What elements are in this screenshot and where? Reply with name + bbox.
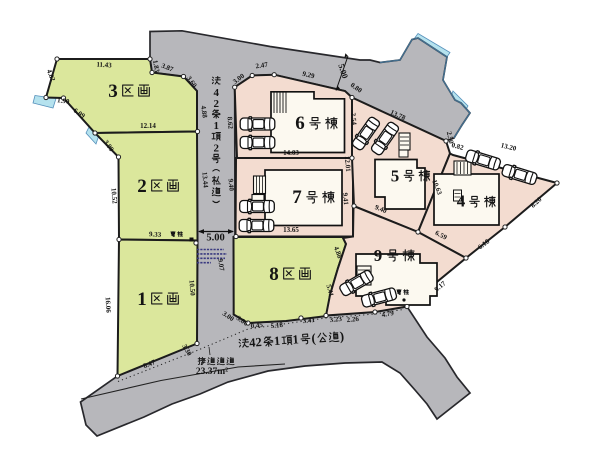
svg-text:2: 2 — [213, 98, 219, 110]
svg-text:16.06: 16.06 — [104, 297, 113, 314]
svg-text:5.18: 5.18 — [270, 321, 284, 330]
svg-text:8.62: 8.62 — [225, 116, 234, 129]
svg-text:10.52: 10.52 — [109, 188, 118, 205]
svg-text:12.01: 12.01 — [343, 156, 352, 173]
svg-text:1: 1 — [273, 334, 280, 348]
svg-text:9: 9 — [374, 246, 383, 265]
svg-text:7: 7 — [292, 187, 302, 208]
svg-text:8: 8 — [269, 264, 279, 285]
svg-text:2.26: 2.26 — [346, 315, 360, 324]
svg-text:9.41: 9.41 — [341, 192, 350, 205]
svg-text:1: 1 — [137, 289, 147, 310]
svg-text:5.00: 5.00 — [206, 233, 224, 244]
svg-text:13.65: 13.65 — [283, 226, 299, 234]
svg-text:42: 42 — [249, 335, 262, 350]
svg-text:1: 1 — [292, 332, 299, 346]
svg-text:4: 4 — [457, 192, 466, 211]
svg-text:10.50: 10.50 — [187, 280, 196, 297]
svg-text:9.40: 9.40 — [226, 178, 235, 191]
svg-text:2: 2 — [137, 176, 147, 197]
svg-text:3.41: 3.41 — [302, 316, 316, 325]
svg-text:0.45: 0.45 — [250, 321, 264, 330]
svg-text:12.14: 12.14 — [140, 122, 156, 130]
svg-text:6: 6 — [295, 113, 305, 134]
svg-text:23.37m²: 23.37m² — [196, 367, 228, 377]
svg-text:2.54: 2.54 — [349, 112, 358, 125]
svg-text:1: 1 — [213, 120, 219, 132]
svg-text:9.33: 9.33 — [149, 230, 162, 239]
svg-text:11.43: 11.43 — [96, 61, 112, 70]
svg-text:3.23: 3.23 — [329, 315, 343, 324]
svg-text:2: 2 — [213, 142, 219, 154]
svg-text:5: 5 — [391, 167, 400, 186]
svg-text:3: 3 — [108, 81, 118, 102]
svg-text:13.44: 13.44 — [200, 172, 209, 189]
svg-text:14.03: 14.03 — [283, 149, 299, 157]
